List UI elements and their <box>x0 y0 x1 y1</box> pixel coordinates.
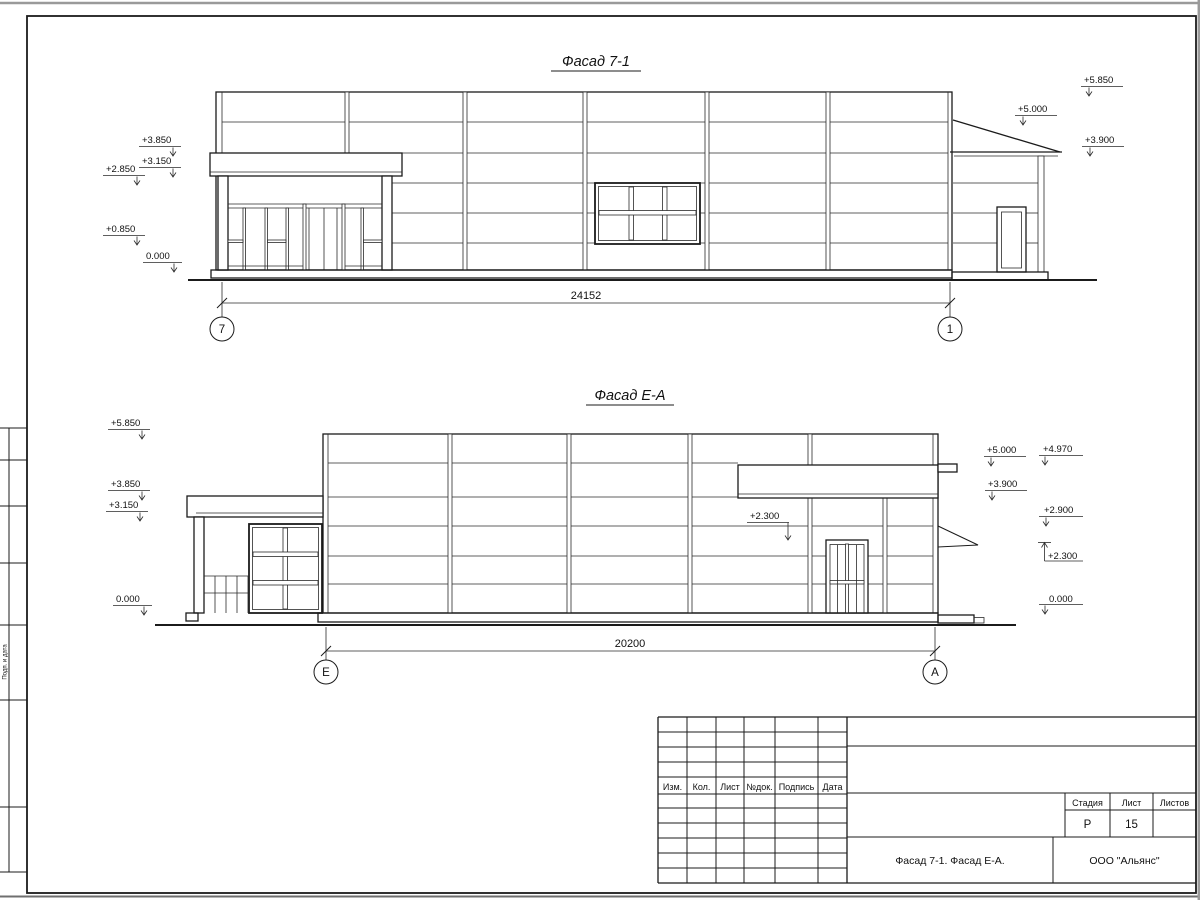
left-annex <box>186 496 323 621</box>
svg-text:Изм.: Изм. <box>663 782 682 792</box>
railing <box>204 576 249 613</box>
svg-text:+3.900: +3.900 <box>988 479 1017 490</box>
sheets-label: Листов <box>1160 798 1189 808</box>
svg-text:Лист: Лист <box>720 782 740 792</box>
entrance-door <box>303 204 345 270</box>
svg-text:+3.150: +3.150 <box>142 156 171 167</box>
title-block: Изм. Кол. Лист №док. Подпись Дата Стадия… <box>658 717 1196 883</box>
svg-text:Кол.: Кол. <box>693 782 711 792</box>
annex-window <box>249 524 322 613</box>
svg-text:+3.150: +3.150 <box>109 500 138 511</box>
elevation-marks-right: +5.000 +4.970 +3.900 +2.900 +2.300 0.000 <box>984 444 1083 614</box>
svg-text:Дата: Дата <box>823 782 843 792</box>
drawing-canvas: Подп. и дата Фасад 7-1 <box>0 0 1200 900</box>
stage-label: Стадия <box>1072 798 1103 808</box>
svg-text:+3.900: +3.900 <box>1085 135 1114 146</box>
drawing-sheet: Подп. и дата Фасад 7-1 <box>0 0 1200 900</box>
entrance-door <box>826 540 868 613</box>
stage-sheet-cells: Стадия Лист Листов Р 15 <box>1072 798 1189 831</box>
signage-band <box>738 464 957 498</box>
drawing-title: Фасад 7-1. Фасад Е-А. <box>895 855 1004 867</box>
main-wall <box>216 92 952 270</box>
plinth <box>318 613 984 623</box>
sheet-value: 15 <box>1125 819 1138 831</box>
svg-text:+5.850: +5.850 <box>1084 75 1113 86</box>
sheet-label: Лист <box>1122 798 1142 808</box>
facade-window <box>595 183 700 244</box>
svg-text:Подпись: Подпись <box>779 782 815 792</box>
stage-value: Р <box>1084 819 1092 831</box>
svg-text:+5.000: +5.000 <box>987 445 1016 456</box>
svg-text:0.000: 0.000 <box>116 594 140 605</box>
svg-text:+3.850: +3.850 <box>111 479 140 490</box>
svg-text:+2.900: +2.900 <box>1044 505 1073 516</box>
dimension-e-a: 20200 Е А <box>314 627 947 684</box>
dimension-value: 20200 <box>615 638 646 650</box>
axis-bubble-a: А <box>931 667 939 679</box>
svg-text:+2.850: +2.850 <box>106 164 135 175</box>
svg-text:+4.970: +4.970 <box>1043 444 1072 455</box>
svg-text:+0.850: +0.850 <box>106 224 135 235</box>
vertical-stamp-label: Подп. и дата <box>3 644 9 680</box>
elevation-marks-left: +5.850 +3.850 +3.150 0.000 <box>106 418 152 615</box>
facade-e-a-title: Фасад Е-А <box>594 388 665 404</box>
axis-bubble-1: 1 <box>947 324 953 336</box>
annex-door <box>997 207 1026 272</box>
axis-bubble-e: Е <box>322 667 330 679</box>
elevation-marks-left: +3.850 +3.150 +2.850 +0.850 0.000 <box>103 135 182 272</box>
dimension-value: 24152 <box>571 290 602 302</box>
svg-text:+5.850: +5.850 <box>111 418 140 429</box>
axis-bubble-7: 7 <box>219 324 225 336</box>
plinth <box>211 270 952 278</box>
facade-7-1: Фасад 7-1 <box>103 54 1124 341</box>
svg-text:0.000: 0.000 <box>1049 594 1073 605</box>
svg-text:№док.: №док. <box>746 782 772 792</box>
entrance-vestibule <box>210 153 402 270</box>
organization-name: ООО "Альянс" <box>1089 855 1159 867</box>
svg-text:0.000: 0.000 <box>146 251 170 262</box>
left-stamp-column: Подп. и дата <box>0 428 27 872</box>
sheet-edge-lines <box>0 0 1200 900</box>
side-canopy <box>938 526 978 547</box>
svg-text:+3.850: +3.850 <box>142 135 171 146</box>
facade-e-a: Фасад Е-А <box>106 388 1083 684</box>
right-annex <box>950 120 1062 280</box>
svg-text:+2.300: +2.300 <box>750 511 779 522</box>
svg-text:+5.000: +5.000 <box>1018 104 1047 115</box>
dimension-7-1: 24152 7 1 <box>210 282 962 341</box>
facade-7-1-title: Фасад 7-1 <box>562 54 630 70</box>
elevation-mark-middle: +2.300 <box>747 511 791 540</box>
revision-header: Изм. Кол. Лист №док. Подпись Дата <box>663 782 843 792</box>
drawing-frame <box>27 16 1196 893</box>
svg-text:+2.300: +2.300 <box>1048 551 1077 562</box>
